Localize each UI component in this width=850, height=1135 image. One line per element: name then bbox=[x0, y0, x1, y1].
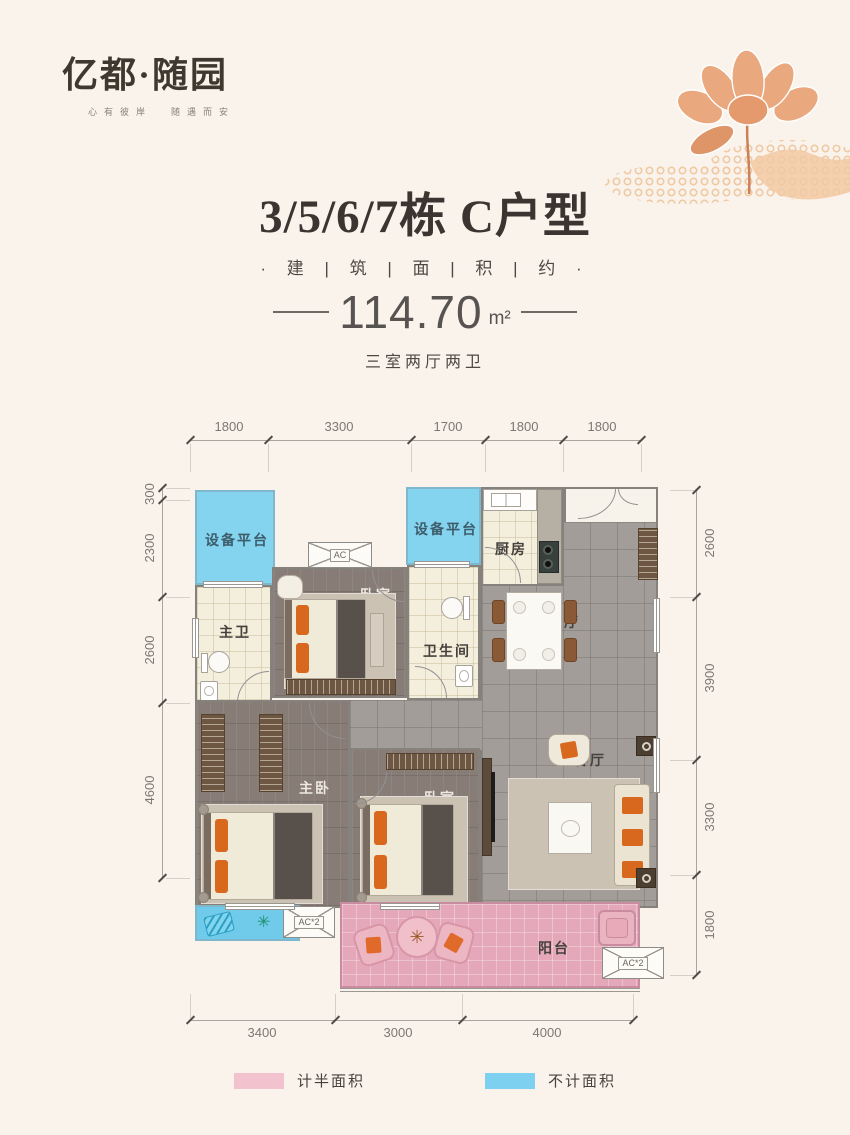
dim-ext bbox=[462, 994, 463, 1018]
lounge-chair bbox=[203, 911, 235, 937]
bed-pillow bbox=[215, 819, 228, 852]
bed-pillow bbox=[296, 605, 309, 635]
area-unit: m² bbox=[489, 308, 511, 335]
right-dash bbox=[521, 311, 577, 313]
bedroom-chair bbox=[277, 575, 303, 599]
window bbox=[653, 598, 660, 653]
equipment-platform-label: 设备平台 bbox=[414, 519, 478, 539]
bed bbox=[203, 812, 313, 900]
hallway bbox=[350, 700, 482, 750]
bedroom-bottom: 卧室 bbox=[350, 748, 480, 908]
door-arc bbox=[415, 666, 447, 698]
floor-plan: 1800 3300 1700 1800 1800 300 2300 2600 4… bbox=[140, 408, 720, 1053]
bathroom: 卫生间 bbox=[407, 565, 480, 700]
brand-tagline: 心有彼岸 随遇而安 bbox=[88, 105, 235, 118]
bed-headboard bbox=[204, 813, 211, 899]
ac-box-bottom-right: AC*2 bbox=[602, 947, 664, 979]
dim-ext bbox=[166, 488, 190, 489]
entrance-door-arc bbox=[618, 489, 638, 505]
dim-tick bbox=[629, 1015, 638, 1024]
window bbox=[414, 561, 470, 568]
dim-ext bbox=[166, 597, 190, 598]
dim-ext bbox=[166, 500, 190, 501]
bedside-table bbox=[198, 892, 209, 903]
sink bbox=[455, 665, 473, 687]
legend-swatch-pink bbox=[234, 1073, 284, 1089]
ac-box-bottom-left: AC*2 bbox=[283, 906, 335, 938]
sink bbox=[200, 681, 218, 701]
brand-name: 亿都·随园 bbox=[62, 46, 235, 98]
dim-line-top bbox=[190, 440, 641, 441]
bed-headboard bbox=[285, 600, 292, 678]
planter bbox=[598, 910, 636, 946]
dim-top-1: 1800 bbox=[207, 420, 251, 434]
bathroom-label: 卫生间 bbox=[423, 641, 471, 661]
balcony-railing bbox=[340, 988, 640, 992]
dining-chair bbox=[564, 638, 577, 662]
dim-right-2: 3900 bbox=[703, 656, 717, 700]
legend-swatch-blue bbox=[485, 1073, 535, 1089]
dim-ext bbox=[633, 994, 634, 1018]
toilet-tank bbox=[463, 596, 470, 620]
ac-label: AC*2 bbox=[618, 957, 647, 970]
window bbox=[380, 903, 440, 910]
side-table bbox=[636, 868, 656, 888]
dim-left-4: 4600 bbox=[143, 768, 157, 812]
dim-line-bottom bbox=[190, 1020, 633, 1021]
dim-top-4: 1800 bbox=[502, 420, 546, 434]
plate bbox=[513, 648, 526, 661]
dim-left-1: 300 bbox=[143, 472, 157, 516]
armchair bbox=[548, 734, 590, 766]
plant-icon: ✳ bbox=[409, 928, 424, 946]
dim-line-left bbox=[162, 488, 163, 878]
entrance-door-arc bbox=[578, 489, 616, 519]
legend-label-half-area: 计半面积 bbox=[297, 1070, 365, 1091]
bed bbox=[284, 599, 366, 679]
entrance-vestibule bbox=[564, 487, 658, 522]
toilet-bowl bbox=[208, 651, 230, 673]
dim-ext bbox=[190, 994, 191, 1018]
equipment-platform-label: 设备平台 bbox=[205, 530, 269, 550]
dim-right-1: 2600 bbox=[703, 521, 717, 565]
ac-box-top: AC bbox=[308, 542, 372, 568]
window bbox=[203, 581, 263, 588]
dim-ext bbox=[335, 994, 336, 1018]
dim-right-4: 1800 bbox=[703, 903, 717, 947]
window bbox=[653, 738, 660, 793]
entry-cabinet bbox=[638, 528, 658, 580]
equipment-platform-left: 设备平台 bbox=[195, 490, 275, 585]
left-dash bbox=[273, 311, 329, 313]
stove-burner bbox=[543, 559, 553, 569]
balcony-chair bbox=[351, 921, 397, 968]
door-arc bbox=[309, 703, 345, 739]
bedside-table bbox=[198, 804, 209, 815]
dim-ext bbox=[670, 760, 694, 761]
dim-tick bbox=[692, 970, 701, 979]
dim-ext bbox=[670, 975, 694, 976]
area-row: 114.70 m² bbox=[0, 289, 850, 335]
balcony-chair bbox=[432, 920, 477, 966]
wardrobe bbox=[201, 714, 225, 792]
bed-pillow bbox=[374, 855, 387, 889]
balcony-table: ✳ bbox=[396, 916, 438, 958]
window bbox=[225, 903, 295, 910]
plate bbox=[542, 648, 555, 661]
dim-ext bbox=[166, 703, 190, 704]
dim-left-2: 2300 bbox=[143, 526, 157, 570]
kitchen: 厨房 bbox=[481, 487, 564, 586]
toilet-tank bbox=[201, 653, 208, 673]
plate bbox=[542, 601, 555, 614]
bed-pillow bbox=[296, 643, 309, 673]
wardrobe bbox=[259, 714, 283, 792]
bed-pillow bbox=[215, 860, 228, 893]
door-arc bbox=[237, 671, 269, 703]
bed-blanket bbox=[336, 600, 365, 678]
layout-type: 三室两厅两卫 bbox=[0, 348, 850, 372]
master-bathroom-label: 主卫 bbox=[219, 622, 251, 642]
stove-burner bbox=[543, 545, 553, 555]
brand-logo: 亿都·随园 心有彼岸 随遇而安 bbox=[62, 46, 235, 118]
ac-label: AC bbox=[330, 549, 351, 562]
master-bathroom: 主卫 bbox=[195, 585, 272, 705]
dim-line-right bbox=[696, 490, 697, 975]
bedside-bench bbox=[370, 613, 384, 667]
dim-right-3: 3300 bbox=[703, 795, 717, 839]
stove bbox=[539, 541, 559, 573]
sofa-cushion bbox=[622, 797, 643, 814]
legend-label-uncounted-area: 不计面积 bbox=[548, 1070, 616, 1091]
legend-item-half-area: 计半面积 bbox=[234, 1070, 365, 1091]
dim-ext bbox=[411, 444, 412, 472]
dining-table bbox=[506, 592, 562, 670]
sofa-cushion bbox=[622, 829, 643, 846]
dim-top-2: 3300 bbox=[317, 420, 361, 434]
master-bedroom-label: 主卧 bbox=[299, 778, 331, 798]
dim-bottom-3: 4000 bbox=[525, 1026, 569, 1040]
brochure-page: 亿都·随园 心有彼岸 随遇而安 3/5/6/7栋 C户型 · 建 | 筑 | 面… bbox=[0, 0, 850, 1135]
dim-ext bbox=[563, 444, 564, 472]
dim-top-3: 1700 bbox=[426, 420, 470, 434]
area-value: 114.70 bbox=[339, 289, 482, 335]
ac-label: AC*2 bbox=[294, 916, 323, 929]
kitchen-sink bbox=[491, 493, 521, 507]
dim-top-5: 1800 bbox=[580, 420, 624, 434]
bedroom-top: 卧室 bbox=[272, 567, 407, 698]
coffee-table bbox=[548, 802, 592, 854]
page-title: 3/5/6/7栋 C户型 bbox=[0, 190, 850, 244]
wardrobe bbox=[286, 679, 396, 695]
plant-icon: ✳ bbox=[257, 915, 270, 931]
dining-chair bbox=[564, 600, 577, 624]
dining-chair bbox=[492, 638, 505, 662]
dim-ext bbox=[670, 490, 694, 491]
toilet-bowl bbox=[441, 597, 463, 619]
dim-ext bbox=[166, 878, 190, 879]
dining-chair bbox=[492, 600, 505, 624]
bed bbox=[362, 804, 454, 896]
bed-headboard bbox=[363, 805, 370, 895]
dim-ext bbox=[485, 444, 486, 472]
dim-bottom-2: 3000 bbox=[376, 1026, 420, 1040]
window bbox=[192, 618, 199, 658]
master-bedroom: 主卧 bbox=[195, 700, 350, 908]
legend-item-uncounted-area: 不计面积 bbox=[485, 1070, 616, 1091]
dim-ext bbox=[190, 444, 191, 472]
tv-console bbox=[482, 758, 492, 856]
dim-ext bbox=[268, 444, 269, 472]
dim-bottom-1: 3400 bbox=[240, 1026, 284, 1040]
area-caption: · 建 | 筑 | 面 | 积 | 约 · bbox=[0, 254, 850, 279]
wardrobe bbox=[386, 753, 474, 770]
dim-ext bbox=[670, 597, 694, 598]
balcony-label: 阳台 bbox=[538, 938, 570, 958]
bed-pillow bbox=[374, 811, 387, 845]
balcony: 阳台 ✳ bbox=[340, 902, 640, 988]
legend: 计半面积 不计面积 bbox=[0, 1070, 850, 1091]
plate bbox=[513, 601, 526, 614]
dim-left-3: 2600 bbox=[143, 628, 157, 672]
equipment-platform-middle: 设备平台 bbox=[406, 487, 481, 565]
bed-blanket bbox=[421, 805, 453, 895]
bed-blanket bbox=[273, 813, 312, 899]
dim-ext bbox=[641, 444, 642, 472]
title-block: 3/5/6/7栋 C户型 · 建 | 筑 | 面 | 积 | 约 · 114.7… bbox=[0, 190, 850, 372]
dim-ext bbox=[670, 875, 694, 876]
